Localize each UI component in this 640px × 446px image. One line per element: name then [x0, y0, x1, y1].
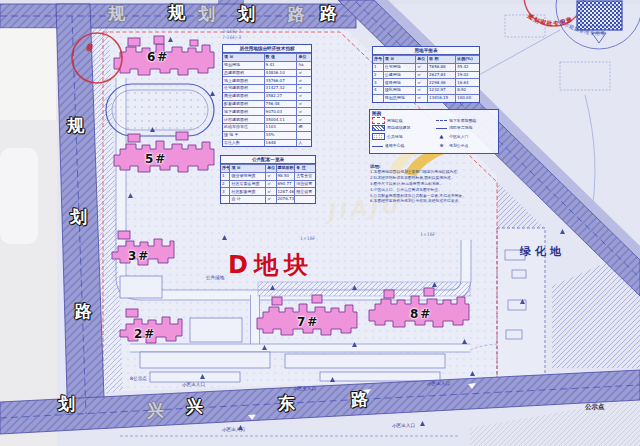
table-row: 居住人数1648人: [223, 139, 311, 147]
table-cell: 31427.32: [264, 85, 297, 92]
table-row: 商业建筑面积3582.27㎡: [223, 92, 311, 100]
table-cell: 规划用地: [223, 62, 264, 69]
notes-panel: 说明: 1.本图用地范围以规划主管部门核定的用地红线为准。 2.技术经济指标详见…: [368, 163, 506, 205]
table-cell: 13816.15: [427, 95, 455, 102]
table-cell: [373, 95, 383, 102]
photo-glare: [0, 28, 56, 120]
table-row: 规划用地9.41ha: [223, 61, 311, 69]
table-cell: 规划总用地: [383, 95, 415, 102]
entrance-label: 小区出入口: [182, 383, 205, 388]
plot-d-label: D地块: [228, 249, 314, 281]
table-cell: 备 注: [294, 165, 315, 172]
table-title: 居住用地综合经济技术指标: [223, 45, 311, 53]
site-plan-blueprint: 规划审批专用章 城市规划管理专用章 JIAJU 规 划 路 规 划 路 规 划 …: [0, 0, 640, 446]
main-entrance-label: 小区主入口: [293, 387, 316, 392]
top-road-char-ghost: 划: [198, 6, 215, 23]
building-label-8: 8#: [410, 307, 432, 321]
table-cell: 98.50: [276, 173, 295, 180]
table-cell: 住宅建筑面积: [223, 85, 264, 92]
table-cell: 总建筑面积: [223, 70, 264, 77]
table-cell: ㎡: [296, 70, 311, 77]
top-road-char-ghost: 规: [108, 5, 125, 22]
table-cell: ㎡: [296, 108, 311, 115]
table-cell: 单位: [296, 54, 311, 61]
top-road-char: 路: [320, 5, 337, 22]
table-cell: 物业管理用房: [229, 173, 265, 180]
entrance-triangle-icon: ▲: [436, 132, 447, 142]
legend-item: 地下车库范围线: [436, 117, 496, 124]
table-cell: 商业建筑面积: [223, 93, 264, 100]
table-row: 4绿化用地㎡1232.978.92: [373, 86, 479, 94]
table-row: 合 计㎡2076.73: [221, 195, 315, 203]
table-row: 规划总用地㎡13816.15100.00: [373, 94, 479, 102]
table-cell: ㎡: [265, 188, 275, 195]
table-cell: [221, 196, 229, 203]
entrance-label: 小区出入口: [427, 382, 450, 387]
left-road-char: 规: [67, 117, 84, 134]
table-cell: 单位: [265, 165, 275, 172]
table-cell: 项 目: [383, 56, 415, 63]
site-map-canvas: 规划审批专用章 城市规划管理专用章: [0, 0, 640, 446]
table-cell: 1: [373, 64, 383, 71]
table-cell: 4: [373, 87, 383, 94]
notice-point-label: 公示点: [585, 404, 605, 411]
table-cell: 道路用地: [383, 79, 415, 86]
dots-swatch: [372, 133, 385, 140]
table-cell: 756.48: [264, 101, 297, 108]
table-cell: 1287.46: [276, 188, 295, 195]
table-row: 3道路用地㎡2298.4616.64: [373, 78, 479, 86]
table-cell: 2627.84: [427, 72, 455, 79]
table-cell: 沿街设置: [294, 181, 315, 188]
table-cell: 项 目: [229, 165, 265, 172]
legend-label: 公共绿地: [387, 133, 403, 140]
table-cell: 3: [221, 188, 229, 195]
legend-item: 消防登高场地: [436, 124, 496, 131]
hatch-swatch: [372, 125, 385, 132]
table-cell: 34%: [264, 132, 297, 139]
green-area-label: 绿化地: [520, 244, 565, 259]
storey-label: 1+16F: [300, 237, 315, 242]
table-cell: 地上建筑面积: [223, 77, 264, 84]
legend-label: 规划公示点: [449, 142, 468, 149]
legend-label: 小区出入口: [449, 133, 468, 140]
land-balance-table: 用地平衡表序号项 目单位面 积比例(%)1住宅用地㎡7656.8855.422公…: [372, 46, 480, 103]
table-cell: 社区配套用房: [229, 188, 265, 195]
legend-title: 图例: [372, 111, 496, 116]
left-road-char: 划: [58, 396, 75, 413]
legend-label: 消防登高场地: [449, 124, 472, 131]
table-row: 1物业管理用房㎡98.50含警务室: [221, 172, 315, 180]
legend-item: ⊕规划公示点: [436, 141, 496, 151]
table-cell: 7656.88: [427, 64, 455, 71]
table-row: 地上建筑面积35766.07㎡: [223, 76, 311, 84]
table-row: 总建筑面积44836.10㎡: [223, 69, 311, 77]
table-row: 3社区配套用房㎡1287.46独立设置: [221, 187, 315, 195]
table-cell: 独立设置: [294, 188, 315, 195]
legend-item: ▲小区出入口: [436, 132, 496, 142]
storey-label: 1+16F: [420, 233, 435, 238]
table-cell: ㎡: [415, 64, 427, 71]
table-cell: 比例(%): [455, 56, 479, 63]
table-cell: 住宅用地: [383, 64, 415, 71]
table-cell: 35004.11: [264, 116, 297, 123]
table-title: 用地平衡表: [373, 47, 479, 55]
legend-panel: 图例 用地红线 地下车库范围线 周边现状建筑 消防登高场地 公共绿地 ▲小区出入…: [369, 109, 499, 154]
table-row: 绿 地 率34%: [223, 131, 311, 139]
legend-label: 地下车库范围线: [449, 117, 476, 124]
bottom-road-char: 东: [278, 395, 296, 413]
table-cell: 地下建筑面积: [223, 108, 264, 115]
public-facilities-table: 公共配套一览表序号项 目单位建筑面积备 注1物业管理用房㎡98.50含警务室2社…: [220, 155, 316, 204]
legend-grid: 用地红线 地下车库范围线 周边现状建筑 消防登高场地 公共绿地 ▲小区出入口 道…: [372, 117, 496, 151]
top-road-char-ghost: 路: [288, 6, 305, 23]
table-cell: ㎡: [415, 95, 427, 102]
table-cell: ㎡: [415, 79, 427, 86]
table-cell: ha: [296, 62, 311, 69]
legend-item: 周边现状建筑: [372, 124, 432, 131]
building-label-5: 5#: [145, 152, 167, 166]
building-label-7: 7#: [297, 315, 319, 329]
table-cell: ㎡: [296, 116, 311, 123]
table-cell: ㎡: [296, 77, 311, 84]
entrance-label: 小区出入口: [392, 424, 415, 429]
table-cell: 建筑面积: [276, 165, 295, 172]
building-label-2: 2#: [134, 327, 156, 341]
table-cell: 序号: [221, 165, 229, 172]
table-row: 计容建筑面积35004.11㎡: [223, 115, 311, 123]
left-road-char: 划: [70, 209, 87, 226]
top-road-char: 规: [168, 4, 185, 21]
solid-line-swatch: [436, 128, 447, 129]
table-cell: [294, 196, 315, 203]
bottom-road-char: 兴: [186, 398, 204, 416]
table-cell: 100.00: [455, 95, 479, 102]
table-cell: ㎡: [415, 72, 427, 79]
table-row: 机动车停车位1103辆: [223, 123, 311, 131]
table-cell: 辆: [296, 124, 311, 131]
table-cell: ㎡: [296, 93, 311, 100]
table-cell: 合 计: [229, 196, 265, 203]
notice-point-icon: ⊕: [436, 141, 447, 151]
table-row: 1住宅用地㎡7656.8855.42: [373, 63, 479, 71]
table-cell: 1648: [264, 140, 297, 147]
legend-item: 道路中心线: [372, 141, 432, 151]
table-cell: ㎡: [265, 173, 275, 180]
green-space-label: 公共绿地: [206, 276, 224, 281]
building-label-6: 6#: [147, 50, 169, 64]
table-cell: 35766.07: [264, 77, 297, 84]
legend-item: 公共绿地: [372, 132, 432, 142]
table-cell: 项 目: [223, 54, 264, 61]
table-row: 配套建筑面积756.48㎡: [223, 100, 311, 108]
indicators-table: 居住用地综合经济技术指标项 目数 值单位规划用地9.41ha总建筑面积44836…: [222, 44, 312, 147]
table-cell: 绿化用地: [383, 87, 415, 94]
table-cell: 16.64: [455, 79, 479, 86]
storey-note: 7-16F/-3: [222, 36, 241, 41]
top-road-char: 划: [238, 6, 255, 23]
bottom-road-char-ghost: 兴: [147, 402, 165, 420]
photo-glare-left: [0, 148, 38, 244]
table-cell: 人: [296, 140, 311, 147]
legend-label: 道路中心线: [385, 142, 404, 149]
table-cell: ㎡: [296, 101, 311, 108]
table-cell: 2076.73: [276, 196, 295, 203]
table-cell: 含警务室: [294, 173, 315, 180]
table-cell: 数 值: [264, 54, 297, 61]
notice-point-b-label: B公示点: [130, 377, 147, 382]
table-cell: 9070.03: [264, 108, 297, 115]
table-cell: 8.92: [455, 87, 479, 94]
table-title: 公共配套一览表: [221, 156, 315, 164]
table-cell: 社区居委会用房: [229, 181, 265, 188]
table-row: 2社区居委会用房㎡690.77沿街设置: [221, 180, 315, 188]
table-cell: 2: [373, 72, 383, 79]
table-cell: [296, 132, 311, 139]
table-cell: 绿 地 率: [223, 132, 264, 139]
table-row: 项 目数 值单位: [223, 53, 311, 61]
table-cell: 面 积: [427, 56, 455, 63]
table-row: 序号项 目单位建筑面积备 注: [221, 164, 315, 172]
dashed-line-swatch: [436, 120, 447, 121]
table-cell: 3: [373, 79, 383, 86]
table-row: 2公建用地㎡2627.8419.02: [373, 71, 479, 79]
table-cell: 1: [221, 173, 229, 180]
centerline-swatch: [372, 146, 383, 147]
table-cell: 2: [221, 181, 229, 188]
table-cell: 单位: [415, 56, 427, 63]
table-cell: 2298.46: [427, 79, 455, 86]
table-cell: 44836.10: [264, 70, 297, 77]
table-cell: ㎡: [415, 87, 427, 94]
table-cell: 3582.27: [264, 93, 297, 100]
table-cell: 序号: [373, 56, 383, 63]
blue-seal-square: [577, 1, 622, 30]
left-road-char: 路: [75, 303, 92, 320]
storey-note: 3-16F/-7: [222, 30, 241, 35]
table-row: 住宅建筑面积31427.32㎡: [223, 84, 311, 92]
bottom-road-char: 路: [351, 391, 369, 409]
table-cell: 居住人数: [223, 140, 264, 147]
table-cell: ㎡: [265, 181, 275, 188]
table-cell: 19.02: [455, 72, 479, 79]
table-cell: 计容建筑面积: [223, 116, 264, 123]
entrance-label: 小区出入口: [222, 428, 245, 433]
table-cell: ㎡: [296, 85, 311, 92]
table-row: 序号项 目单位面 积比例(%): [373, 55, 479, 63]
table-cell: 690.77: [276, 181, 295, 188]
table-cell: 1232.97: [427, 87, 455, 94]
table-cell: 公建用地: [383, 72, 415, 79]
table-cell: 1103: [264, 124, 297, 131]
table-cell: 55.42: [455, 64, 479, 71]
building-label-3: 3#: [128, 249, 150, 263]
legend-item: 用地红线: [372, 117, 432, 124]
note-line: 6.本图经审定后作为规划公示依据,未经批准不得更改。: [370, 198, 504, 204]
legend-label: 用地红线: [387, 117, 403, 124]
red-line-swatch: [372, 117, 385, 124]
table-cell: 9.41: [264, 62, 297, 69]
table-row: 地下建筑面积9070.03㎡: [223, 107, 311, 115]
table-cell: 机动车停车位: [223, 124, 264, 131]
table-cell: ㎡: [265, 196, 275, 203]
legend-label: 周边现状建筑: [387, 124, 410, 131]
table-cell: 配套建筑面积: [223, 101, 264, 108]
